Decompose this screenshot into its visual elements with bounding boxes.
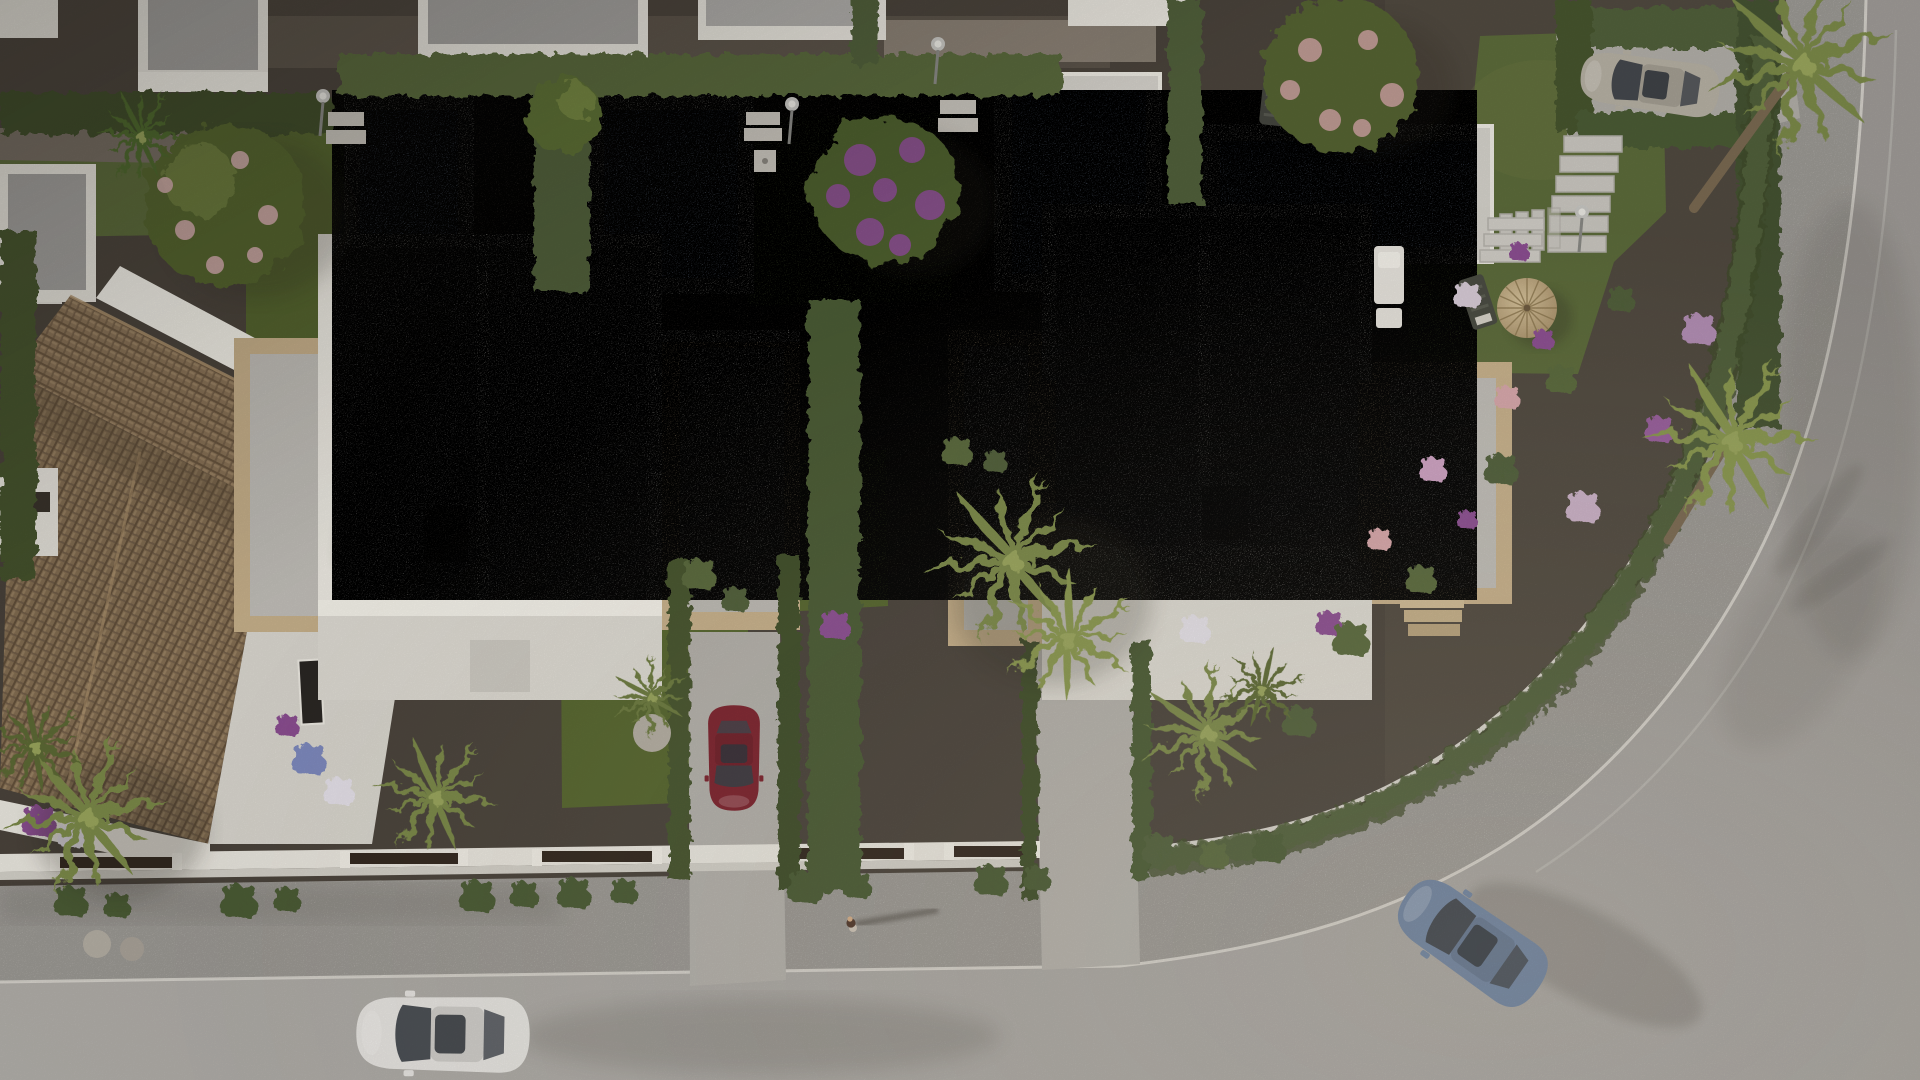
lighting (0, 0, 1920, 1080)
aerial-render (0, 0, 1920, 1080)
render-canvas (0, 0, 1920, 1080)
film-grain (0, 0, 1920, 1080)
